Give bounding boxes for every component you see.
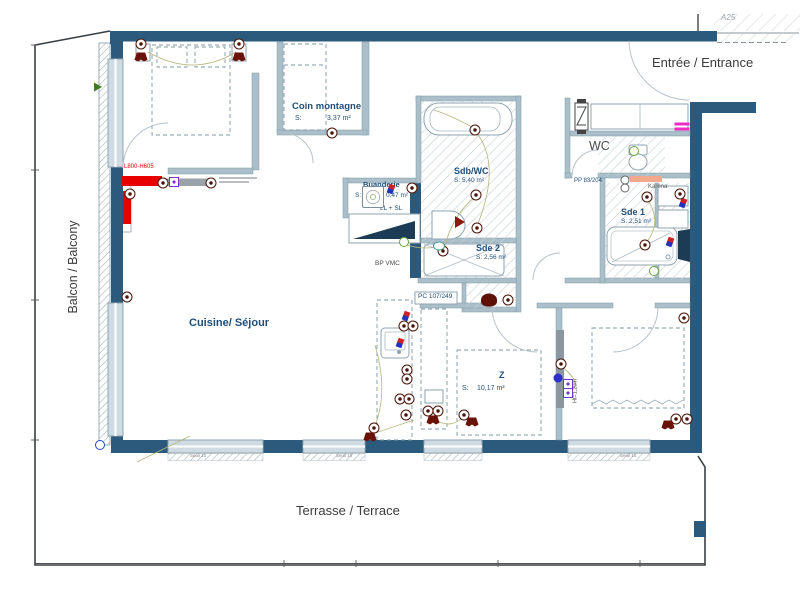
- coin-montagne-area: 3,37 m²: [327, 115, 351, 122]
- socket-symbol: [408, 321, 419, 332]
- washing-machine-symbol: [362, 186, 384, 208]
- balcony-label: Balcon / Balcony: [67, 220, 80, 313]
- bp-vmc-note: BP VMC: [375, 261, 400, 268]
- socket-symbol: [136, 39, 147, 50]
- window-sills: [168, 454, 650, 461]
- coin-montagne-label: Coin montagne: [292, 102, 361, 112]
- spot-light-symbol: [629, 146, 639, 156]
- sde1-label: Sde 1: [621, 208, 645, 217]
- a25-reference-label: A25: [721, 14, 735, 22]
- socket-symbol: [158, 178, 169, 189]
- socket-symbol: [369, 423, 380, 434]
- bedroom-s: S:: [462, 385, 469, 392]
- socket-symbol: [234, 39, 245, 50]
- valve-symbol: [621, 184, 630, 193]
- bedroom-area: 10,17 m²: [477, 385, 505, 392]
- spot-light-symbol: [433, 242, 445, 251]
- socket-symbol: [470, 125, 481, 136]
- buanderie-area: 0,47 m²: [386, 193, 408, 200]
- sde2-area: S: 2,56 m²: [476, 255, 506, 262]
- socket-symbol: [471, 190, 482, 201]
- tv-unit-note: L800-H605: [124, 164, 154, 170]
- pp-reference: PP 83/204: [574, 178, 602, 184]
- window-height-note: Ht=1,20m: [573, 379, 579, 403]
- entrance-label: Entrée / Entrance: [652, 56, 753, 69]
- wc-macerator-symbol: [481, 294, 497, 307]
- seuil-note-1: Seuil 10: [190, 454, 206, 459]
- seuil-note-2: Seuil 10: [336, 454, 352, 459]
- socket-symbol: [675, 189, 686, 200]
- tv-outlet-symbol: [169, 177, 179, 187]
- sdb-wc-area: S: 5,40 m²: [454, 178, 484, 185]
- seuil-note-3: Seuil 10: [620, 454, 636, 459]
- socket-symbol: [640, 240, 651, 251]
- spot-light-symbol: [399, 237, 409, 247]
- socket-symbol: [433, 406, 444, 417]
- socket-symbol: [682, 414, 693, 425]
- kitchen-living-label: Cuisine/ Séjour: [189, 318, 269, 329]
- socket-symbol: [122, 292, 133, 303]
- terrace-label: Terrasse / Terrace: [296, 504, 400, 517]
- socket-symbol: [401, 410, 412, 421]
- socket-symbol: [206, 178, 217, 189]
- bedroom-tag: Z: [499, 371, 505, 380]
- socket-symbol: [679, 313, 690, 324]
- socket-symbol: [125, 189, 136, 200]
- floor-plan-canvas: Entrée / Entrance Terrasse / Terrace Bal…: [0, 0, 800, 600]
- socket-symbol: [327, 128, 338, 139]
- socket-symbol: [402, 374, 413, 385]
- buanderie-s: S:: [355, 193, 361, 200]
- socket-symbol: [404, 394, 415, 405]
- socket-symbol: [642, 192, 653, 203]
- sde1-area: S: 2,51 m²: [621, 219, 651, 226]
- socket-symbol: [472, 223, 483, 234]
- pc-reference: PC 107/249: [418, 294, 452, 301]
- highlight-mark: [675, 128, 690, 131]
- socket-symbol: [503, 295, 514, 306]
- wc-label: WC: [589, 140, 610, 153]
- drain-symbol: [95, 440, 105, 450]
- sdb-wc-label: Sdb/WC: [454, 167, 489, 176]
- sensor-symbol: [554, 374, 563, 383]
- highlight-mark: [675, 123, 690, 126]
- spot-light-symbol: [649, 266, 659, 276]
- socket-symbol: [407, 183, 418, 194]
- floor-plan-drawing: [0, 0, 800, 600]
- coin-montagne-s: S:: [295, 115, 302, 122]
- tv-outlet-symbol: [563, 388, 573, 398]
- socket-symbol: [556, 359, 567, 370]
- terrace-post: [694, 521, 706, 537]
- sde2-label: Sde 2: [476, 244, 500, 253]
- radiator-label: Karena: [648, 184, 667, 190]
